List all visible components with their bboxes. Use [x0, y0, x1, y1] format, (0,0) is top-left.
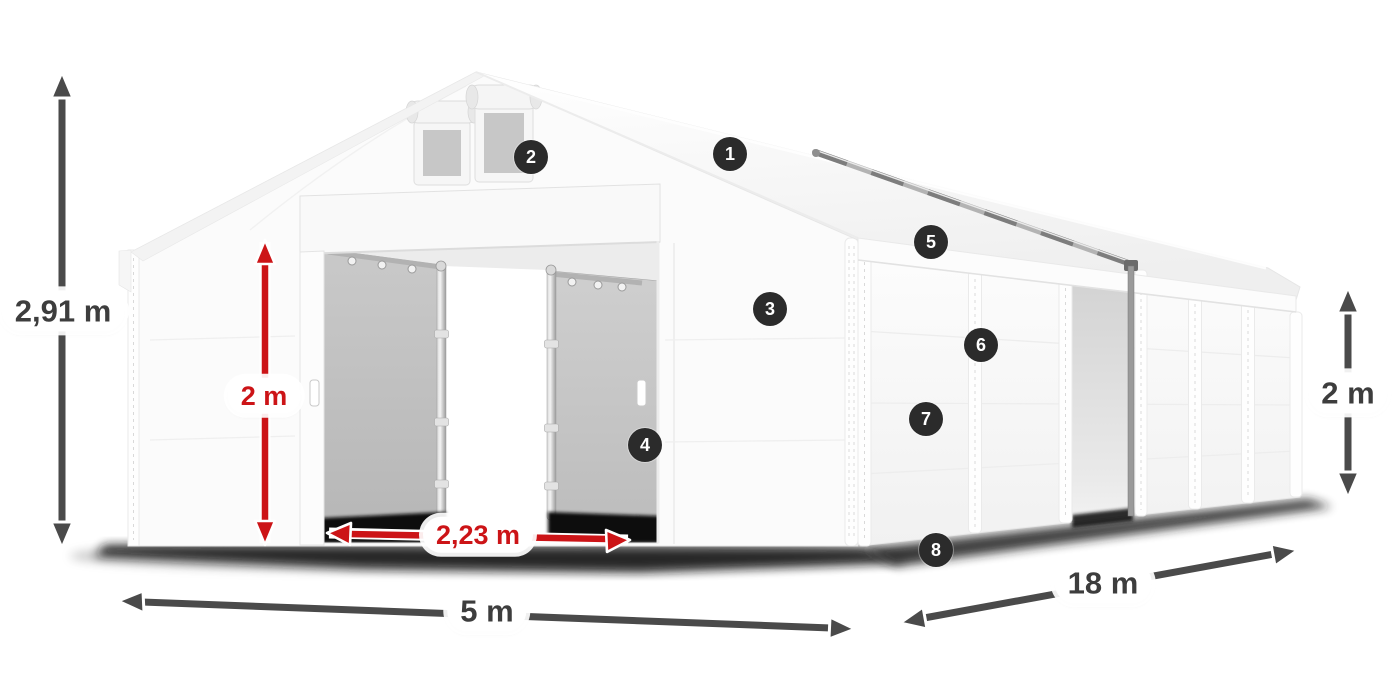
- front-door-interior: [320, 236, 660, 543]
- door-height-label: 2 m: [228, 378, 301, 414]
- callout-badge-1[interactable]: 1: [713, 137, 747, 171]
- door-handle-left: [310, 380, 319, 406]
- front-width-label: 5 m: [447, 590, 526, 631]
- pole-clamps: [435, 330, 559, 490]
- side-height-label: 2 m: [1308, 372, 1387, 413]
- side-wall-opening: [1072, 281, 1133, 522]
- length-label: 18 m: [1055, 562, 1152, 603]
- callout-badge-2[interactable]: 2: [514, 140, 548, 174]
- gable-window-left: [406, 101, 480, 185]
- callout-badge-4[interactable]: 4: [628, 428, 662, 462]
- callout-badge-8[interactable]: 8: [919, 533, 953, 567]
- door-width-label: 2,23 m: [423, 517, 533, 553]
- tent-illustration: [0, 0, 1400, 700]
- rail-post: [1128, 266, 1134, 516]
- callout-badge-3[interactable]: 3: [753, 292, 787, 326]
- callout-badge-5[interactable]: 5: [914, 225, 948, 259]
- callout-badge-7[interactable]: 7: [909, 402, 943, 436]
- tent-dimension-diagram: 2,91 m 2 m 2,23 m 5 m 18 m 2 m 1 2 3 4 5…: [0, 0, 1400, 700]
- total-height-label: 2,91 m: [2, 290, 125, 331]
- door-handle-right: [637, 380, 646, 406]
- callout-badge-6[interactable]: 6: [964, 328, 998, 362]
